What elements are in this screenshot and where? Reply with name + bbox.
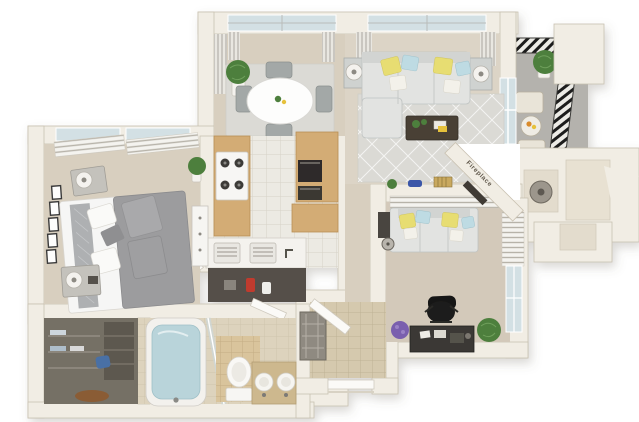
dresser (192, 206, 208, 266)
blue-decor-car (408, 180, 422, 187)
pillow-white (450, 230, 464, 242)
office-chair-seat (427, 301, 455, 323)
curtain (228, 32, 240, 60)
stove-top (216, 152, 248, 200)
folded-clothes (50, 346, 66, 351)
entry-shelf-unit (300, 312, 326, 360)
wall-entry-bottom-right (372, 378, 398, 394)
purple-plant (391, 321, 409, 339)
wall-frame (47, 250, 57, 264)
stored-item (224, 280, 236, 290)
desk (410, 326, 474, 352)
table-plant (421, 119, 427, 125)
pillow-white (389, 75, 407, 91)
den-sofa (390, 208, 478, 252)
wall-frame (48, 234, 58, 248)
desk-paper (420, 330, 431, 338)
pillow-white (404, 227, 418, 239)
front-door (328, 380, 374, 389)
wall-bath-left (28, 304, 44, 418)
coffee-table-top (406, 116, 458, 140)
nightstand-decor (88, 276, 98, 284)
plant-foliage (533, 50, 557, 74)
balcony-chair (516, 92, 543, 113)
burner-center (224, 184, 227, 187)
fruit-bowl (526, 121, 531, 126)
pillow-blue (461, 216, 475, 229)
pillow-yellow (441, 212, 458, 228)
wall-living-right (500, 12, 516, 78)
fan-hub (386, 242, 389, 245)
sofa-chaise (362, 98, 402, 138)
floor-plant (477, 318, 501, 342)
toilet (226, 357, 252, 401)
pillow-white (443, 79, 460, 94)
table-centerpiece (275, 96, 281, 102)
folded-clothes (50, 330, 66, 335)
sink-basin (281, 377, 291, 387)
bed-pillow-gray (127, 235, 168, 279)
pillow-blue (401, 55, 419, 72)
closet-rack (104, 322, 134, 380)
plant-bloom (401, 330, 405, 334)
wall-frame (52, 186, 62, 200)
closet-rug (75, 390, 109, 402)
burner-center (238, 184, 241, 187)
balcony-table (521, 116, 541, 136)
table-centerpiece (282, 100, 286, 104)
lamp-finial (479, 72, 484, 77)
wall-dining-left (198, 12, 214, 136)
wall-frame (50, 202, 60, 216)
water-heater-cap (538, 189, 545, 196)
sink-basin (250, 243, 276, 263)
sink-basin (214, 243, 240, 263)
room-bathroom (44, 318, 296, 406)
walk-in-closet (44, 318, 138, 404)
laptop (450, 333, 464, 343)
open-cabinet (208, 268, 306, 302)
pillow-yellow (399, 213, 416, 229)
desk-paper (434, 330, 446, 338)
desk-lamp (465, 333, 471, 339)
cabinet-interior (208, 268, 306, 302)
lamp-finial (82, 178, 87, 183)
microwave (298, 186, 322, 200)
shelf-plant (387, 179, 397, 189)
lamp-finial (72, 278, 77, 283)
wall-frame (49, 218, 59, 232)
toilet-tank (226, 388, 252, 401)
floor-plan-canvas: Fireplace (0, 0, 639, 422)
kitchen-counter-return (292, 204, 338, 232)
lower-recess (560, 224, 596, 250)
table-plant (412, 120, 420, 128)
dining-chair (316, 86, 332, 112)
dresser-knob (199, 217, 202, 220)
side-table (378, 212, 390, 238)
curtain (214, 34, 227, 94)
pillow-blue (415, 210, 431, 224)
red-canister (246, 278, 255, 292)
nightstand (61, 265, 101, 298)
floor-plan-image: Fireplace (0, 0, 639, 422)
wall-entry-bottom-left (296, 378, 328, 394)
dresser-knob (199, 249, 202, 252)
toilet-seat (232, 362, 247, 382)
sink-faucet (284, 393, 288, 397)
room-bedroom (44, 128, 208, 313)
utility-recess (566, 160, 610, 220)
floor-plan: Fireplace (28, 12, 639, 418)
book-stack (434, 177, 452, 187)
plant-foliage (226, 60, 250, 84)
lamp-finial (352, 70, 357, 75)
pillow-blue (455, 61, 471, 77)
burner-center (224, 162, 227, 165)
plant-bloom (395, 325, 399, 329)
coffee-table (406, 116, 458, 140)
white-canister (262, 282, 271, 294)
sink-faucet (262, 393, 266, 397)
table-book (438, 126, 447, 132)
pillow-yellow (433, 57, 453, 75)
burner-center (238, 162, 241, 165)
fruit-bowl (532, 125, 536, 129)
tub-faucet (173, 397, 178, 402)
roof-block (554, 24, 604, 84)
folded-clothes (70, 346, 84, 351)
nightstand (70, 166, 107, 196)
sink-basin (259, 377, 269, 387)
plant-foliage (188, 157, 206, 175)
dining-chair (266, 62, 292, 78)
curtain (322, 32, 335, 62)
tub-water (152, 325, 200, 399)
bathtub (146, 318, 206, 406)
range-stove (216, 152, 248, 200)
blue-stool (95, 355, 111, 369)
sink-counter (206, 238, 306, 268)
double-sink-vanity (252, 362, 296, 404)
dresser-knob (199, 233, 202, 236)
wall-bedroom-left (28, 126, 44, 324)
hallway-floor (345, 184, 370, 302)
